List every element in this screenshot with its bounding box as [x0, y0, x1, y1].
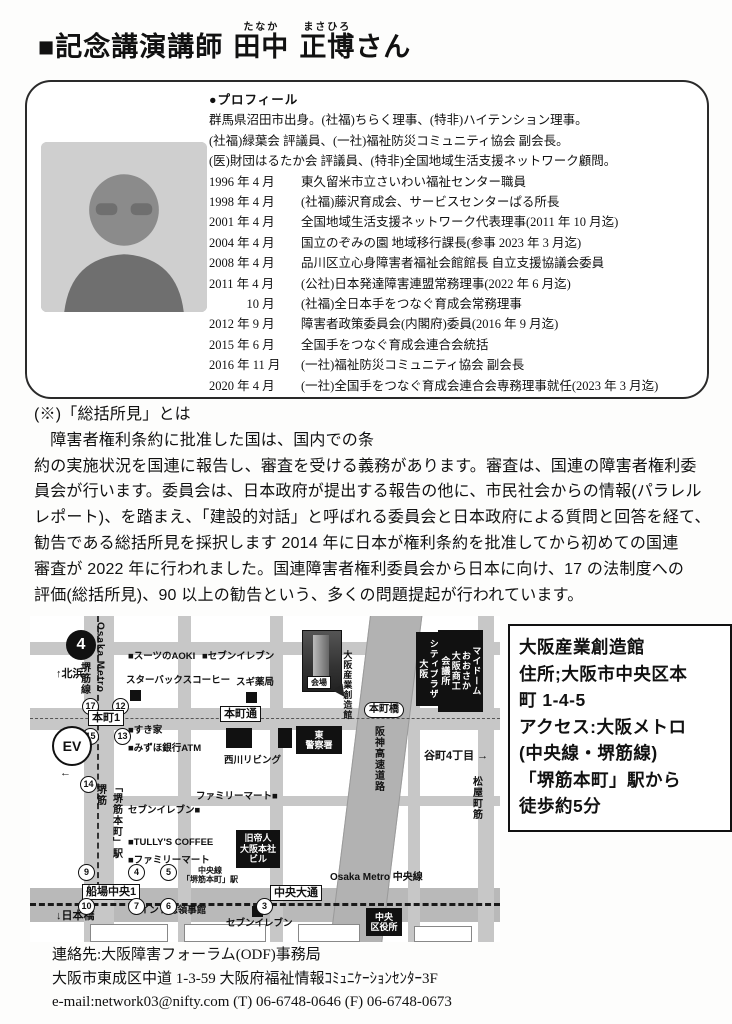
building-block	[278, 728, 292, 748]
building-block	[226, 728, 252, 748]
career-desc: (社福)全日本手をつなぐ育成会常務理事	[301, 294, 522, 314]
city-block	[298, 924, 360, 942]
venue-info-line: アクセス:大阪メトロ	[519, 714, 721, 741]
title-marker: ■記念講演講師	[38, 32, 223, 62]
contact-lines: 連絡先:大阪障害フォーラム(ODF)事務局大阪市東成区中道 1-3-59 大阪府…	[52, 944, 452, 1015]
career-list: 1996 年 4 月 東久留米市立さいわい福祉センター職員 1998 年 4 月…	[209, 172, 703, 396]
career-row: 2020 年 4 月 (一社)全国手をつなぐ育成会連合会専務理事就任(2023 …	[209, 376, 703, 396]
chuo-odori-label: 中央大通	[270, 885, 322, 901]
career-desc: (社福)藤沢育成会、サービスセンターぱる所長	[301, 192, 559, 212]
sakaisuji-honmachi-station-label: 「堺筋本町」駅	[110, 782, 122, 860]
poi-sugi-marker	[246, 692, 257, 703]
profile-intro-line: 群馬県沼田市出身。(社福)ちらく理事、(特非)ハイテンション理事。	[209, 110, 703, 130]
exit-10: 10	[78, 898, 95, 915]
career-desc: 障害者政策委員会(内閣府)委員(2016 年 9 月迄)	[301, 314, 558, 334]
poi-seven-eleven-top: ■セブンイレブン	[202, 652, 274, 663]
career-date: 2011 年 4 月	[209, 274, 301, 294]
explanation-heading: (※)「総括所見」とは	[34, 402, 718, 428]
explanation-line: 審査が 2022 年に行われました。国連障害者権利委員会から日本に向け、17 の…	[34, 557, 718, 583]
poi-sugi-pharmacy: スギ薬局	[236, 678, 274, 689]
career-desc: 全国地域生活支援ネットワーク代表理事(2011 年 10 月迄)	[301, 212, 618, 232]
career-desc: 国立のぞみの園 地域移行課長(参事 2023 年 3 月迄)	[301, 233, 581, 253]
explanation-line: 約の実施状況を国連に報告し、審査を受ける義務があります。審査は、国連の障害者権利…	[34, 454, 718, 480]
explanation-body: 障害者権利条約に批准した国は、国内での条約の実施状況を国連に報告し、審査を受ける…	[34, 428, 718, 609]
explanation-line: 障害者権利条約に批准した国は、国内での条	[34, 428, 718, 454]
explanation-line: レポート)、を踏まえ、「建設的対話」と呼ばれる委員会と日本政府による質問と回答を…	[34, 505, 718, 531]
career-desc: (一社)全国手をつなぐ育成会連合会専務理事就任(2023 年 3 月迄)	[301, 376, 658, 396]
sokatsu-shoken-explanation: (※)「総括所見」とは 障害者権利条約に批准した国は、国内での条約の実施状況を国…	[34, 402, 718, 608]
career-date: 2004 年 4 月	[209, 233, 301, 253]
contact-line: 連絡先:大阪障害フォーラム(ODF)事務局	[52, 944, 452, 968]
former-teijin-building: 旧帝人 大阪本社 ビル	[236, 830, 280, 868]
profile-box: ●プロフィール 群馬県沼田市出身。(社福)ちらく理事、(特非)ハイテンション理事…	[25, 80, 709, 399]
honmachibashi-label: 本町橋	[364, 702, 404, 718]
page-title: ■記念講演講師田中たなか正博まさひろさん	[38, 22, 411, 64]
career-row: 10 月 (社福)全日本手をつなぐ育成会常務理事	[209, 294, 703, 314]
career-desc: (一社)福祉防災コミュニティ協会 副会長	[301, 355, 524, 375]
tanimachi-4-arrow: 谷町4丁目 →	[424, 750, 488, 763]
career-row: 2016 年 11 月 (一社)福祉防災コミュニティ協会 副会長	[209, 355, 703, 375]
exit-6: 6	[160, 898, 177, 915]
career-desc: 東久留米市立さいわい福祉センター職員	[301, 172, 526, 192]
route-sign-4: 4	[66, 630, 96, 660]
hanshin-expressway-label: 阪神高速道路	[372, 726, 384, 812]
career-desc: 品川区立心身障害者福祉会館館長 自立支援協議会委員	[301, 253, 604, 273]
semba-chuo-1: 船場中央1	[82, 884, 140, 900]
poi-familymart-upper: ファミリーマート■	[196, 792, 278, 803]
exit-4: 4	[128, 864, 145, 881]
city-plaza-osaka: シティプラザ大阪	[416, 632, 441, 706]
contact-line: 大阪市東成区中道 1-3-59 大阪府福祉情報ｺﾐｭﾆｹｰｼｮﾝｾﾝﾀｰ3F	[52, 968, 452, 992]
career-date: 1996 年 4 月	[209, 172, 301, 192]
career-date: 2012 年 9 月	[209, 314, 301, 334]
explanation-line: 員会が行います。委員会は、日本政府が提出する報告の他に、市民社会からの情報(パラ…	[34, 479, 718, 505]
access-map: 会場 大阪産業創造館 4↑北浜Osaka Metro堺筋線1712本町11513…	[30, 616, 500, 942]
venue-building-photo: 会場	[302, 630, 342, 692]
career-row: 2015 年 6 月 全国手をつなぐ育成会連合会統括	[209, 335, 703, 355]
venue-tag: 会場	[307, 676, 331, 689]
speaker-surname: 田中たなか	[233, 32, 289, 62]
portrait-silhouette	[41, 142, 207, 312]
career-date: 10 月	[209, 294, 301, 314]
career-row: 2004 年 4 月 国立のぞみの園 地域移行課長(参事 2023 年 3 月迄…	[209, 233, 703, 253]
city-block	[90, 924, 168, 942]
speaker-photo	[41, 142, 207, 312]
exit-14: 14	[80, 776, 97, 793]
venue-info-box: 大阪産業創造館住所;大阪市中央区本町 1-4-5アクセス:大阪メトロ(中央線・堺…	[508, 624, 732, 832]
career-date: 2015 年 6 月	[209, 335, 301, 355]
explanation-line: 勧告である総括所見を採択します 2014 年に日本が権利条約を批准してから初めて…	[34, 531, 718, 557]
honmachi-dori-label: 本町通	[220, 706, 261, 722]
explanation-line: 評価(総括所見)、90 以上の勧告という、多くの問題提起が行われています。	[34, 583, 718, 609]
exit-9: 9	[78, 864, 95, 881]
career-row: 1996 年 4 月 東久留米市立さいわい福祉センター職員	[209, 172, 703, 192]
chuo-line-station-label: 中央線 「堺筋本町」駅	[182, 866, 238, 884]
career-date: 2016 年 11 月	[209, 355, 301, 375]
poi-suits-aoki: ■スーツのAOKI	[128, 652, 195, 663]
profile-intro-line: (社福)緑葉会 評議員、(一社)福祉防災コミュニティ協会 副会長。	[209, 131, 703, 151]
career-row: 2008 年 4 月 品川区立心身障害者福祉会館館長 自立支援協議会委員	[209, 253, 703, 273]
career-desc: (公社)日本発達障害連盟常務理事(2022 年 6 月迄)	[301, 274, 571, 294]
poi-starbucks-marker	[130, 690, 141, 701]
city-block	[414, 926, 472, 942]
road-vertical-2	[178, 616, 191, 942]
career-date: 1998 年 4 月	[209, 192, 301, 212]
mydome-osaka-cci: マイドーム おおさか 大阪商工 会議所	[438, 630, 483, 712]
name-suffix: さん	[355, 32, 411, 62]
venue-info-line: 「堺筋本町」駅から	[519, 767, 721, 794]
poi-tullys-coffee: ■TULLY'S COFFEE	[128, 838, 213, 849]
poi-sukiya: ■すき家	[128, 726, 162, 737]
venue-info-line: (中央線・堺筋線)	[519, 740, 721, 767]
honmachi-1-intersection: 本町1	[88, 710, 124, 726]
profile-heading: ●プロフィール	[209, 90, 703, 110]
career-date: 2001 年 4 月	[209, 212, 301, 232]
poi-starbucks: スターバックスコーヒー	[126, 676, 230, 687]
venue-info-line: 大阪産業創造館	[519, 634, 721, 661]
profile-intro-line: (医)財団はるたか会 評議員、(特非)全国地域生活支援ネットワーク顧問。	[209, 151, 703, 171]
building-image	[313, 635, 329, 679]
exit-13: 13	[114, 728, 131, 745]
poi-seven-eleven-bottom: セブンイレブン	[226, 919, 293, 930]
flyer-page: ■記念講演講師田中たなか正博まさひろさん ●プロフィール 群馬県沼田市出身。(社…	[0, 0, 732, 1024]
matsuyamachi-suji-label: 松屋町筋	[470, 776, 482, 834]
career-row: 2012 年 9 月 障害者政策委員会(内閣府)委員(2016 年 9 月迄)	[209, 314, 703, 334]
poi-seven-eleven-mid: セブンイレブン■	[128, 806, 200, 817]
career-row: 2001 年 4 月 全国地域生活支援ネットワーク代表理事(2011 年 10 …	[209, 212, 703, 232]
exit-7: 7	[128, 898, 145, 915]
higashi-police-station: 東 警察署	[296, 726, 342, 754]
poi-nishikawa-living: 西川リビング	[224, 756, 281, 767]
venue-info-line: 町 1-4-5	[519, 687, 721, 714]
venue-info-line: 住所;大阪市中央区本	[519, 661, 721, 688]
elevator-marker: EV	[52, 726, 92, 766]
exit-5: 5	[160, 864, 177, 881]
poi-mizuho-atm: ■みずほ銀行ATM	[128, 744, 201, 755]
career-date: 2008 年 4 月	[209, 253, 301, 273]
exit-3: 3	[256, 898, 273, 915]
contact-block: 連絡先:大阪障害フォーラム(ODF)事務局大阪市東成区中道 1-3-59 大阪府…	[52, 944, 452, 1015]
venue-info-line: 徒歩約5分	[519, 793, 721, 820]
speaker-givenname: 正博まさひろ	[299, 32, 355, 62]
venue-info-lines: 大阪産業創造館住所;大阪市中央区本町 1-4-5アクセス:大阪メトロ(中央線・堺…	[519, 634, 721, 820]
osaka-metro-chuo-line-label: Osaka Metro 中央線	[330, 872, 423, 884]
career-row: 2011 年 4 月 (公社)日本発達障害連盟常務理事(2022 年 6 月迄)	[209, 274, 703, 294]
career-date: 2020 年 4 月	[209, 376, 301, 396]
profile-text: ●プロフィール 群馬県沼田市出身。(社福)ちらく理事、(特非)ハイテンション理事…	[209, 90, 703, 396]
profile-intro: 群馬県沼田市出身。(社福)ちらく理事、(特非)ハイテンション理事。(社福)緑葉会…	[209, 110, 703, 171]
contact-line: e-mail:network03@nifty.com (T) 06-6748-0…	[52, 991, 452, 1015]
chuo-ward-office: 中央 区役所	[366, 908, 402, 936]
career-row: 1998 年 4 月 (社福)藤沢育成会、サービスセンターぱる所長	[209, 192, 703, 212]
career-desc: 全国手をつなぐ育成会連合会統括	[301, 335, 489, 355]
